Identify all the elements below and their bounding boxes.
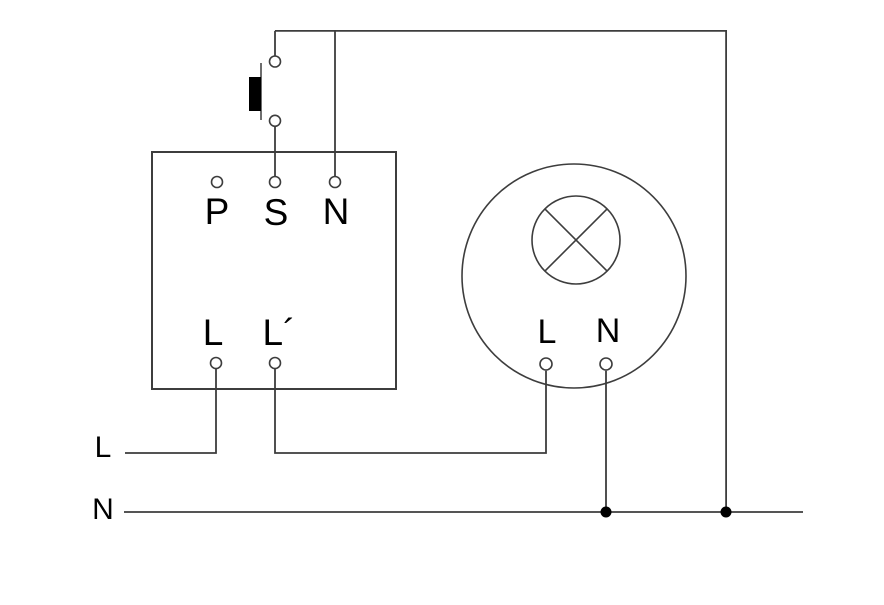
lamp-terminal-l-circle — [540, 358, 552, 370]
wiring-diagram-canvas: P S N L L´ L N L N — [0, 0, 884, 605]
supply-neutral-label: N — [92, 493, 114, 526]
lamp-terminal-n-circle — [600, 358, 612, 370]
terminal-p-label: P — [205, 191, 230, 232]
luminaire: L N — [462, 164, 686, 388]
terminal-s-circle — [270, 177, 281, 188]
push-button-terminal-bottom — [270, 115, 281, 126]
terminal-s-label: S — [264, 192, 289, 233]
terminal-p-circle — [212, 177, 223, 188]
terminal-n-label: N — [323, 191, 350, 232]
luminaire-outline — [462, 164, 686, 388]
terminal-l-switched-label: L´ — [263, 312, 296, 353]
lamp-terminal-n-label: N — [596, 312, 621, 350]
terminal-l-switched-circle — [270, 358, 281, 369]
push-button — [249, 56, 281, 126]
push-button-terminal-top — [270, 56, 281, 67]
junction-dot — [721, 507, 732, 518]
terminal-l-circle — [211, 358, 222, 369]
terminal-l-label: L — [203, 312, 224, 353]
junction-dot — [601, 507, 612, 518]
push-button-actuator — [249, 77, 261, 111]
supply-live-label: L — [95, 431, 112, 464]
terminal-n-circle — [330, 177, 341, 188]
lamp-terminal-l-label: L — [538, 313, 557, 351]
wiring-diagram: P S N L L´ L N L N — [0, 0, 884, 605]
